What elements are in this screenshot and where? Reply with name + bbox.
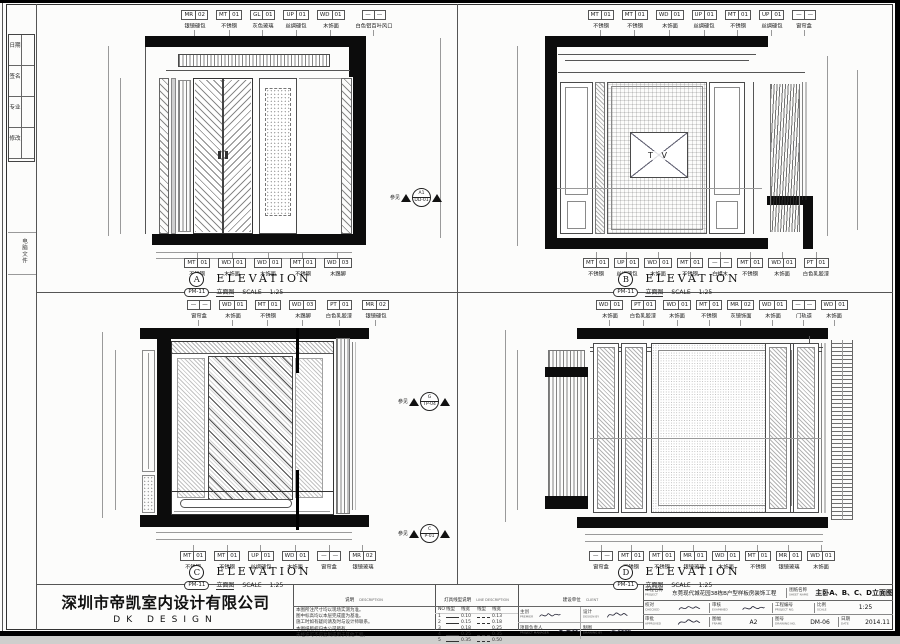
material-code-box: UP01 — [759, 10, 784, 20]
line-sample-dashed — [477, 617, 490, 618]
material-code-box: WD01 — [317, 10, 345, 20]
wall — [577, 517, 828, 528]
material-code-box: MT01 — [677, 258, 703, 268]
revision-blank — [22, 97, 34, 127]
wall-edge-line — [753, 82, 754, 234]
material-callout: WD01 木饰面 — [821, 300, 849, 326]
material-code-box: MT01 — [696, 300, 722, 310]
curtain-panel — [770, 84, 800, 232]
signature — [538, 610, 562, 620]
revision-row: 签名 — [9, 66, 34, 97]
material-code-box: MT01 — [214, 551, 240, 561]
material-callouts-top: MT01 不锈钢 MT01 不锈钢 WD01 木饰面 UP01 丝绸硬包 — [537, 10, 867, 36]
shelf-section — [831, 340, 853, 520]
dim-line — [517, 350, 518, 510]
material-code-box: WD01 — [759, 300, 787, 310]
material-code-box: —— — [317, 551, 341, 561]
info-row-3: 审批APPROVED 图幅FRAME A2 图号DRAWING NO. DM-0… — [643, 615, 893, 629]
material-callout: MT01 不锈钢 — [696, 300, 722, 326]
revision-row: 修改 — [9, 128, 34, 159]
elevation-letter: D — [618, 565, 633, 580]
dim-line — [505, 330, 506, 522]
material-callouts-top: MR02 银镜硬包 MT01 不锈钢 GL01 灰色玻璃 UP01 丝绸硬包 — [138, 10, 438, 36]
section-arrow-icon — [401, 194, 411, 202]
material-callout: —— 白色铝百叶风口 — [353, 10, 395, 36]
material-callout: WD01 木饰面 — [219, 300, 247, 326]
dim-line — [440, 38, 441, 238]
sheet-edge-top — [0, 0, 900, 3]
description-lines: 本图所注尺寸均以现场实测为准。图中标高均以本层完成面为基准。施工时如有疑问请及时… — [293, 607, 435, 640]
section-ref: 参见 A1DD-01 — [390, 188, 442, 207]
revision-table: 日期 签名 专业 修改 — [8, 34, 35, 162]
elevation-letter: B — [618, 272, 633, 287]
material-label: 不锈钢 — [221, 22, 237, 30]
mirror-door — [295, 358, 323, 498]
wall — [577, 328, 828, 339]
tv-marker: T V — [630, 132, 688, 178]
wall — [545, 238, 768, 249]
section-cut-line — [296, 470, 299, 530]
section-arrow-icon — [409, 530, 419, 538]
material-callout: MT01 不锈钢 — [216, 10, 242, 36]
material-code-box: MR02 — [349, 551, 376, 561]
dim-line — [585, 541, 823, 542]
mirror-insert — [797, 347, 815, 509]
signature — [557, 626, 581, 636]
signature — [669, 617, 709, 627]
signature — [608, 626, 632, 636]
project-name: 东莞现代城花园38栋B户型样板房装饰工程 — [672, 589, 786, 597]
inset-panel — [567, 201, 586, 229]
info-row-1: 工程名称PROJECT 东莞现代城花园38栋B户型样板房装饰工程 图纸名称SHE… — [643, 585, 893, 601]
revision-label: 日期 — [9, 35, 22, 65]
material-code-box: —— — [187, 300, 211, 310]
material-code-box: MT01 — [588, 10, 614, 20]
wall — [353, 72, 366, 245]
mirror-insert — [625, 347, 643, 509]
line-sample-solid — [446, 629, 459, 630]
material-code-box: WD01 — [663, 300, 691, 310]
material-code-box: MT01 — [649, 551, 675, 561]
material-label: 丝绸硬包 — [694, 22, 715, 30]
inset-panel — [714, 87, 740, 195]
margin-line — [8, 274, 36, 275]
material-label: 丝绸硬包 — [761, 22, 782, 30]
material-callout: PT01 白色乳胶漆 — [628, 300, 658, 326]
material-label: 白色乳胶漆 — [630, 312, 656, 320]
line-sample-solid — [446, 623, 459, 624]
mirror-insert — [597, 347, 615, 509]
material-callout: UP01 丝绸硬包 — [692, 10, 717, 36]
material-code-box: UP01 — [692, 10, 717, 20]
material-code-box: WD01 — [254, 258, 282, 268]
line-sample-dashed — [477, 641, 490, 642]
wall — [140, 328, 369, 339]
wall — [545, 36, 557, 249]
section-arrow-icon — [440, 398, 450, 406]
mirror-door — [621, 343, 647, 513]
material-label: 不锈钢 — [260, 312, 276, 320]
sheet-border-left — [2, 3, 3, 631]
tv-label: T V — [646, 151, 672, 160]
linetype-header: 灯具线型说明 LINE DESCRIPTION — [435, 585, 518, 607]
material-code-box: WD01 — [807, 551, 835, 561]
cornice-line — [558, 54, 756, 55]
material-code-box: WD01 — [821, 300, 849, 310]
material-code-box: MT01 — [618, 551, 644, 561]
material-code-box: MT01 — [255, 300, 281, 310]
material-label: 银镜硬包 — [184, 22, 205, 30]
cornice — [178, 54, 330, 67]
mullion — [595, 82, 605, 234]
material-label: 不锈钢 — [593, 22, 609, 30]
material-callouts-top: WD01 木饰面 PT01 白色乳胶漆 WD01 木饰面 MT01 不锈钢 — [557, 300, 887, 326]
linetype-cell: 灯具线型说明 LINE DESCRIPTION NO 线型 线宽 线型 线宽 1… — [435, 585, 518, 630]
stile — [171, 78, 176, 234]
see-label: 参见 — [390, 194, 400, 201]
wall-step — [545, 496, 588, 509]
material-callout: PT01 白色乳胶漆 — [801, 252, 831, 278]
info-grid: 工程名称PROJECT 东莞现代城花园38栋B户型样板房装饰工程 图纸名称SHE… — [643, 585, 893, 630]
signature — [669, 603, 709, 613]
title-block: 深圳市帝凯室内设计有限公司 DK DESIGN 说明 DESCRIPTION 本… — [38, 585, 893, 630]
see-label: 参见 — [398, 530, 408, 537]
bench-line — [174, 511, 330, 512]
material-code-box: MT01 — [290, 258, 316, 268]
see-label: 参见 — [398, 398, 408, 405]
elevation-letter: C — [189, 565, 204, 580]
dim-line — [115, 350, 116, 510]
dim-line — [590, 438, 822, 439]
linetype-row: 5 0.35 0.50 — [438, 638, 515, 644]
revision-blank — [22, 66, 34, 96]
material-callout: GL01 灰色玻璃 — [250, 10, 275, 36]
revision-row: 日期 — [9, 35, 34, 66]
material-label: 木饰面 — [826, 312, 842, 320]
inset-panel — [265, 88, 291, 216]
signer-premier: 主创PREMIER — [518, 607, 581, 622]
wall — [140, 515, 369, 527]
revision-label: 专业 — [9, 97, 22, 127]
material-code-box: MT01 — [583, 258, 609, 268]
material-callout: WD01 木饰面 — [596, 300, 624, 326]
line-sample-solid — [446, 641, 459, 642]
material-code-box: MR01 — [776, 551, 803, 561]
client-cell: 建设单位 CLIENT 主创PREMIER 设计DESIGN BY 项目负责人P… — [518, 585, 643, 630]
material-code-box: WD01 — [644, 258, 672, 268]
signer-row: 主创PREMIER 设计DESIGN BY — [518, 607, 643, 623]
side-strip — [336, 338, 350, 514]
material-code-box: MR01 — [680, 551, 707, 561]
material-label: 木饰面 — [765, 312, 781, 320]
material-callouts-top: —— 窗帘盒 WD01 木饰面 MT01 不锈钢 WD03 木踢脚 — [143, 300, 433, 326]
material-label: 门轨道 — [796, 312, 812, 320]
margin-divider — [36, 4, 37, 630]
material-label: 银镜硬包 — [365, 312, 386, 320]
dim-line — [827, 56, 828, 236]
material-label: 木饰面 — [662, 22, 678, 30]
material-code-box: MR02 — [181, 10, 208, 20]
door-leaf — [224, 80, 251, 232]
door-handle — [218, 151, 221, 159]
material-label: 灰色玻璃 — [252, 22, 273, 30]
material-code-box: WD03 — [289, 300, 317, 310]
material-code-box: PT01 — [631, 300, 656, 310]
framed-cabinet — [259, 78, 297, 234]
material-code-box: GL01 — [250, 10, 275, 20]
linetype-colheads: NO 线型 线宽 线型 线宽 — [435, 607, 518, 614]
drawer-pull — [180, 499, 292, 508]
signer-row: 项目负责人PROJECT MANAGER 制图DRAWING BY — [518, 623, 643, 639]
material-code-box: MT01 — [725, 10, 751, 20]
material-callout: WD01 木饰面 — [656, 10, 684, 36]
mirror-insert — [769, 347, 787, 509]
wall — [152, 234, 366, 245]
material-callout: PT01 白色乳胶漆 — [324, 300, 354, 326]
framed-pilaster — [709, 82, 745, 234]
elevation-a: MR02 银镜硬包 MT01 不锈钢 GL01 灰色玻璃 UP01 丝绸硬包 — [38, 6, 457, 292]
material-code-box: UP01 — [248, 551, 273, 561]
elevation-d: WD01 木饰面 PT01 白色乳胶漆 WD01 木饰面 MT01 不锈钢 — [457, 292, 895, 584]
elevation-letter: A — [189, 272, 204, 287]
wall — [157, 328, 171, 527]
elevation-c: —— 窗帘盒 WD01 木饰面 MT01 不锈钢 WD03 木踢脚 — [38, 292, 457, 584]
material-callout: MR02 银镜玻璃 — [349, 545, 376, 571]
material-label: 木饰面 — [323, 22, 339, 30]
ref-bubble: GTP-04 — [420, 392, 439, 411]
material-code-box: MT01 — [745, 551, 771, 561]
margin-line — [8, 232, 36, 233]
dim-line — [120, 78, 121, 234]
material-code-box: PT01 — [804, 258, 829, 268]
date-value: 2014.11 — [862, 619, 893, 626]
section-arrow-icon — [440, 530, 450, 538]
wall-edge-line — [145, 47, 146, 234]
revision-label: 签名 — [9, 66, 22, 96]
drawing-no-value: DM-06 — [802, 619, 838, 626]
material-code-box: —— — [708, 258, 732, 268]
material-callout: WD01 木饰面 — [317, 10, 345, 36]
material-callout: WD01 木饰面 — [663, 300, 691, 326]
material-code-box: WD01 — [656, 10, 684, 20]
material-code-box: WD03 — [324, 258, 352, 268]
sheet-edge-right — [895, 0, 900, 636]
dim-line — [102, 332, 103, 518]
material-code-box: PT01 — [327, 300, 352, 310]
door-handle — [225, 151, 228, 159]
top-rail — [172, 342, 333, 354]
ref-bubble: A1DD-01 — [412, 188, 431, 207]
material-callout: MT01 不锈钢 — [725, 10, 751, 36]
material-code-box: MT01 — [216, 10, 242, 20]
mirror-door — [177, 358, 205, 498]
material-code-box: WD01 — [219, 300, 247, 310]
company-cell: 深圳市帝凯室内设计有限公司 DK DESIGN — [38, 585, 293, 630]
material-code-box: —— — [362, 10, 386, 20]
side-strip — [352, 342, 356, 510]
material-code-box: —— — [792, 300, 816, 310]
revision-blank — [22, 35, 34, 65]
description-header: 说明 DESCRIPTION — [293, 585, 435, 607]
material-code-box: —— — [589, 551, 613, 561]
description-cell: 说明 DESCRIPTION 本图所注尺寸均以现场实测为准。图中标高均以本层完成… — [293, 585, 435, 630]
line-sample-dashed — [477, 635, 490, 636]
material-callout: WD01 木饰面 — [807, 545, 835, 571]
material-callout: UP01 丝绸硬包 — [283, 10, 308, 36]
material-label: 不锈钢 — [730, 22, 746, 30]
framed-pilaster — [560, 82, 593, 234]
material-label: 木饰面 — [813, 563, 829, 571]
side-trim-panel — [159, 78, 169, 234]
material-label: 木饰面 — [669, 312, 685, 320]
elevation-b: MT01 不锈钢 MT01 不锈钢 WD01 木饰面 UP01 丝绸硬包 — [457, 6, 895, 292]
sheet-name: 主卧A、B、C、D立面图 — [815, 588, 893, 598]
material-code-box: MT01 — [737, 258, 763, 268]
dim-line — [557, 188, 762, 189]
section-arrow-icon — [409, 398, 419, 406]
adjacent-pedestal — [142, 475, 155, 513]
company-name: 深圳市帝凯室内设计有限公司 — [61, 591, 269, 613]
mirror-door — [593, 343, 619, 513]
material-callout: —— 窗帘盒 — [187, 300, 211, 326]
glass-panel — [208, 356, 293, 500]
dim-line — [108, 46, 109, 236]
file-note: 电脑文件 — [20, 238, 28, 264]
material-label: 白色乳胶漆 — [326, 312, 352, 320]
line-sample-solid — [446, 635, 459, 636]
section-cut-line — [296, 328, 299, 373]
frame-value: A2 — [735, 619, 772, 626]
material-callout: MR02 银镜硬包 — [181, 10, 208, 36]
material-callout: —— 门轨道 — [792, 300, 816, 326]
cornice-line — [565, 60, 749, 61]
curtain-rod-line — [558, 72, 805, 73]
adjacent-panel — [142, 350, 155, 472]
wall-step — [803, 205, 813, 249]
material-label: 不锈钢 — [627, 22, 643, 30]
signer-design: 设计DESIGN BY — [581, 607, 643, 622]
material-callout: MR02 银镜硬包 — [362, 300, 389, 326]
cornice-line — [166, 70, 350, 71]
signer-draft: 制图DRAWING BY — [581, 623, 643, 639]
wall-step — [545, 367, 588, 377]
material-callout: MR02 灰镜饰面 — [727, 300, 754, 326]
drawing-sheet: 日期 签名 专业 修改 电脑文件 MR0 — [0, 0, 900, 636]
curtain-track — [802, 82, 808, 200]
material-code-box: MR02 — [362, 300, 389, 310]
dim-line — [156, 532, 352, 533]
material-code-box: WD01 — [712, 551, 740, 561]
shelf-line — [842, 340, 843, 520]
inset-panel — [565, 87, 588, 195]
client-header: 建设单位 CLIENT — [518, 585, 643, 607]
brand-name: DK DESIGN — [113, 615, 217, 625]
material-code-box: UP01 — [283, 10, 308, 20]
mirror-door — [765, 343, 791, 513]
dim-line — [585, 534, 823, 535]
material-label: 丝绸硬包 — [286, 22, 307, 30]
material-label: 木饰面 — [602, 312, 618, 320]
side-trim-panel — [341, 78, 352, 234]
bench — [172, 491, 333, 515]
material-callout: —— 窗帘盒 — [792, 10, 816, 36]
material-callout: MT01 不锈钢 — [588, 10, 614, 36]
panel-line — [148, 353, 149, 469]
wall — [349, 36, 366, 77]
section-arrow-icon — [432, 194, 442, 202]
material-callout: UP01 丝绸硬包 — [759, 10, 784, 36]
revision-row: 专业 — [9, 97, 34, 128]
material-label: 窗帘盒 — [191, 312, 207, 320]
material-code-box: WD01 — [282, 551, 310, 561]
line-sample-dashed — [477, 629, 490, 630]
signature — [605, 610, 629, 620]
material-code-box: UP01 — [614, 258, 639, 268]
material-code-box: —— — [792, 10, 816, 20]
dim-line — [857, 70, 858, 230]
material-code-box: WD01 — [596, 300, 624, 310]
material-label: 木饰面 — [225, 312, 241, 320]
revision-blank — [22, 128, 34, 158]
line-sample-solid — [446, 617, 459, 618]
material-callout: MT01 不锈钢 — [622, 10, 648, 36]
edge-strip — [821, 343, 827, 513]
material-label: 窗帘盒 — [796, 22, 812, 30]
material-label: 不锈钢 — [701, 312, 717, 320]
wardrobe-doors — [193, 78, 253, 234]
wardrobe — [171, 341, 334, 515]
fluted-panel — [178, 80, 191, 232]
info-row-2: 校对CHECKED 审核EXAMINED 工程编号PROJECT NO. 比例S… — [643, 601, 893, 615]
ref-bubble: CP-01 — [420, 524, 439, 543]
material-label: 白色乳胶漆 — [803, 270, 829, 278]
section-ref: 参见 CP-01 — [398, 524, 450, 543]
material-code-box: MT01 — [184, 258, 210, 268]
center-stile — [222, 79, 224, 233]
wall-edge-line — [587, 377, 588, 496]
inset-panel — [716, 201, 738, 229]
material-callout: WD01 木饰面 — [759, 300, 787, 326]
signature — [735, 603, 772, 613]
dim-line — [156, 539, 352, 540]
wall — [145, 36, 366, 47]
dim-line — [517, 46, 518, 246]
material-code-box: MR02 — [727, 300, 754, 310]
wall — [545, 36, 768, 47]
material-callout: WD03 木踢脚 — [289, 300, 317, 326]
material-code-box: WD01 — [768, 258, 796, 268]
linetype-rows: 1 0.10 0.13 2 0.15 0.18 — [435, 614, 518, 644]
material-label: 灰镜饰面 — [730, 312, 751, 320]
material-label: 银镜玻璃 — [352, 563, 373, 571]
scale-value: 1:25 — [838, 604, 893, 611]
line-sample-dashed — [477, 623, 490, 624]
material-callout: MT01 不锈钢 — [255, 300, 281, 326]
mirror-door — [793, 343, 819, 513]
material-code-box: MT01 — [622, 10, 648, 20]
revision-label: 修改 — [9, 128, 22, 158]
signer-pm: 项目负责人PROJECT MANAGER — [518, 623, 581, 639]
material-label: 白色铝百叶风口 — [355, 22, 392, 30]
material-label: 木踢脚 — [295, 312, 311, 320]
material-code-box: WD01 — [218, 258, 246, 268]
section-ref: 参见 GTP-04 — [398, 392, 450, 411]
material-code-box: MT01 — [180, 551, 206, 561]
